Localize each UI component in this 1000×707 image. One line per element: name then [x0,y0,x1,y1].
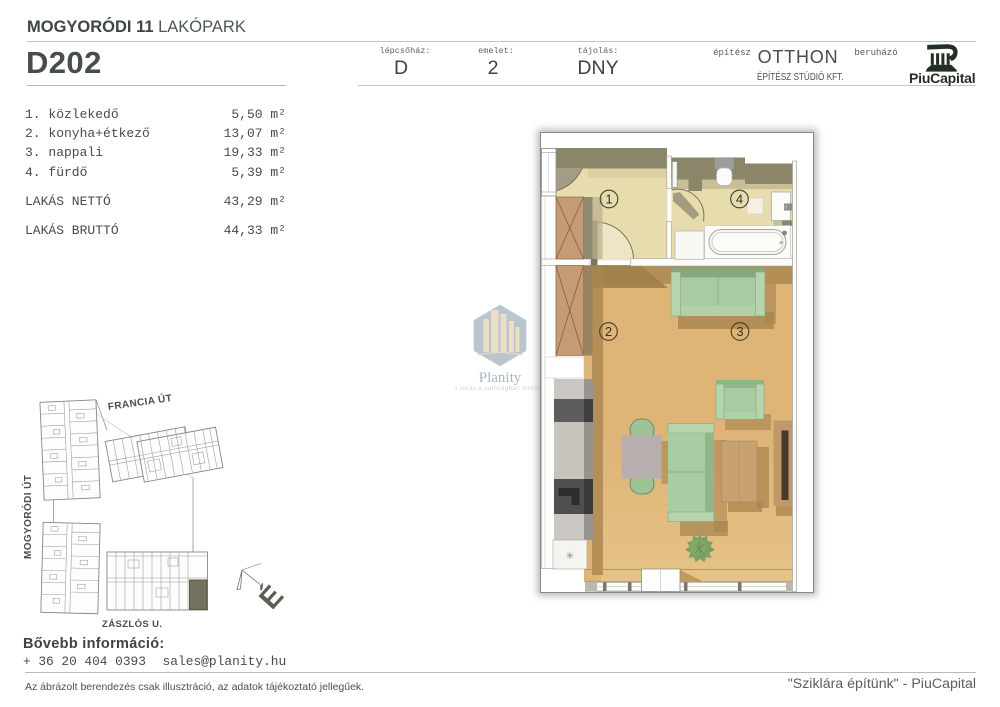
svg-text:FRANCIA ÚT: FRANCIA ÚT [107,391,173,413]
svg-text:4: 4 [736,192,743,207]
svg-text:É: É [252,578,290,615]
svg-text:ZÁSZLÓS U.: ZÁSZLÓS U. [102,618,162,630]
svg-text:3: 3 [736,324,743,339]
svg-text:1: 1 [605,192,612,207]
svg-text:Planity: Planity [479,370,522,386]
svg-text:2: 2 [605,324,612,339]
svg-text:a lakás a valóságban eltérhet: a lakás a valóságban eltérhet [455,386,546,392]
svg-text:✳: ✳ [566,551,574,562]
svg-text:MOGYORÓDI ÚT: MOGYORÓDI ÚT [21,475,34,559]
